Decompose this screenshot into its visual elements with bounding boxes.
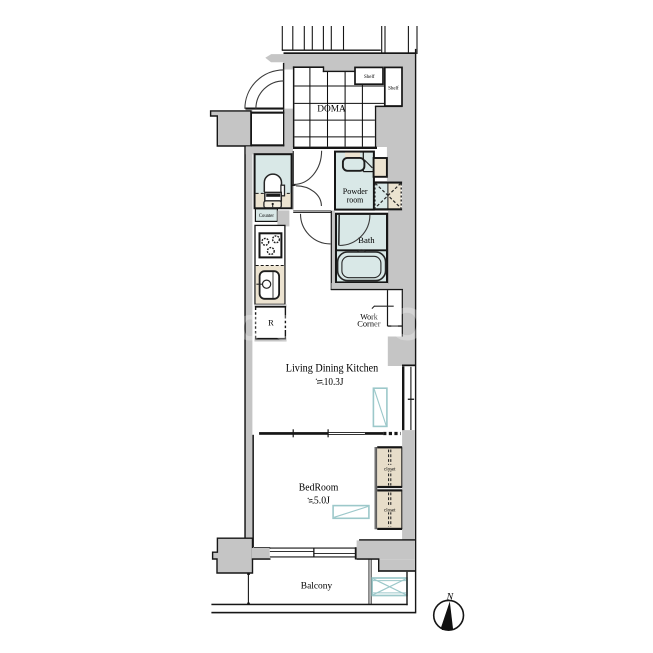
svg-text:Counter: Counter [259, 214, 274, 219]
svg-text:closet: closet [384, 467, 396, 472]
svg-text:BedRoom: BedRoom [299, 483, 339, 494]
svg-text:Shelf: Shelf [388, 87, 399, 92]
svg-text:10.3J: 10.3J [324, 377, 344, 388]
svg-text:closet: closet [384, 509, 396, 514]
svg-text:DOMA: DOMA [317, 103, 346, 114]
svg-text:N: N [446, 591, 454, 602]
svg-text:5.0J: 5.0J [314, 496, 330, 507]
svg-text:ooROOM: ooROOM [236, 298, 477, 350]
svg-text:Balcony: Balcony [301, 580, 332, 591]
svg-text:room: room [347, 195, 364, 205]
svg-text:Living Dining Kitchen: Living Dining Kitchen [286, 363, 379, 375]
svg-text:Shelf: Shelf [364, 75, 375, 80]
